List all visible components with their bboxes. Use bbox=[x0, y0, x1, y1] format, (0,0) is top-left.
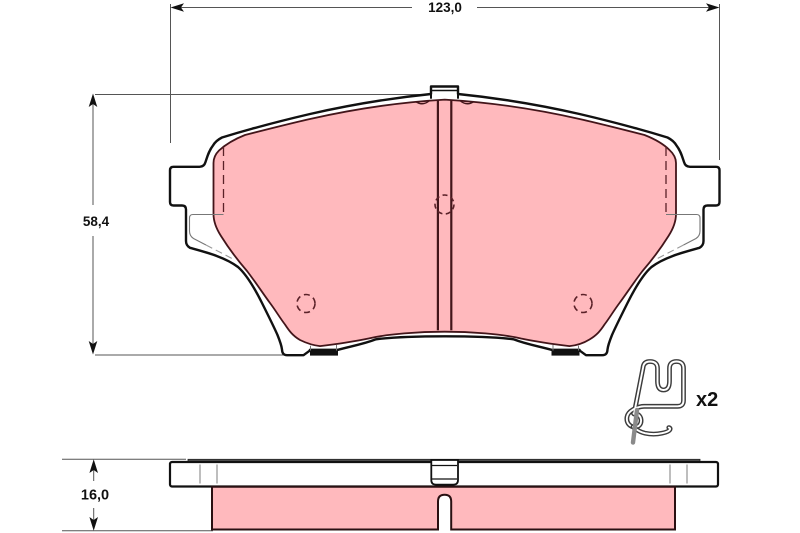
svg-text:123,0: 123,0 bbox=[428, 0, 462, 15]
svg-text:58,4: 58,4 bbox=[83, 214, 110, 229]
svg-text:x2: x2 bbox=[696, 389, 718, 411]
svg-text:16,0: 16,0 bbox=[81, 488, 109, 504]
